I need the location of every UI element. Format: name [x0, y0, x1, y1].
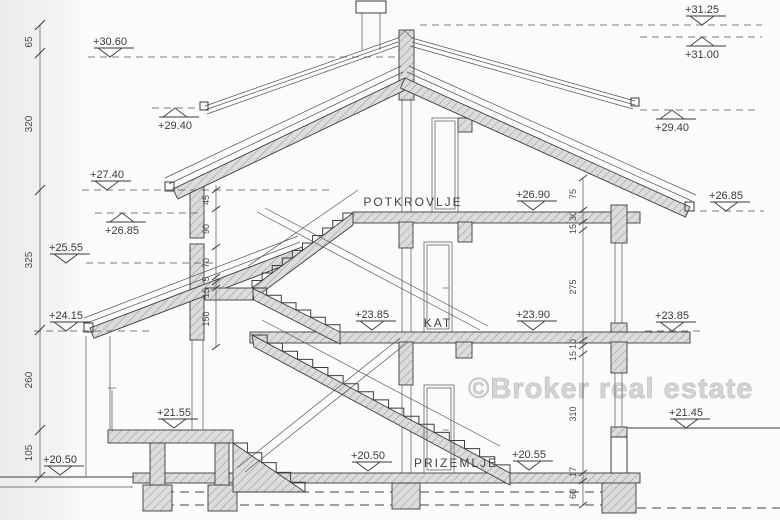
svg-text:17: 17	[568, 467, 578, 477]
svg-text:+23.85: +23.85	[655, 310, 689, 322]
roof	[84, 1, 696, 338]
svg-text:+20.55: +20.55	[512, 449, 546, 461]
svg-text:260: 260	[24, 371, 35, 388]
watermark-text: ©Broker real estate	[468, 373, 753, 405]
svg-text:+26.85: +26.85	[105, 225, 139, 237]
svg-text:+25.55: +25.55	[49, 242, 83, 254]
ground-floor-label: PRIZEMLJE	[414, 456, 498, 470]
svg-text:+24.15: +24.15	[49, 310, 83, 322]
svg-text:+30.60: +30.60	[93, 36, 127, 48]
svg-text:+31.25: +31.25	[685, 4, 719, 16]
attic-floor-slab	[353, 212, 640, 223]
elevation-marker-26-90: +26.90	[516, 189, 557, 210]
svg-text:310: 310	[568, 406, 578, 421]
svg-text:105: 105	[24, 444, 35, 461]
svg-text:10: 10	[568, 339, 578, 349]
elevation-marker-20-50-left: +20.50	[43, 454, 84, 475]
svg-text:15: 15	[568, 351, 578, 361]
first-floor-slab	[250, 332, 690, 343]
elevation-marker-26-85-right: +26.85	[709, 190, 750, 211]
porch-slab	[108, 430, 233, 443]
svg-text:+21.45: +21.45	[669, 407, 703, 419]
svg-text:70: 70	[201, 258, 211, 268]
svg-text:+23.85: +23.85	[355, 309, 389, 321]
first-floor-label: KAT	[424, 316, 452, 330]
elevation-marker-27-40: +27.40	[90, 169, 131, 190]
elevation-marker-20-55: +20.55	[512, 449, 553, 470]
chimney	[356, 1, 386, 13]
svg-text:+29.40: +29.40	[655, 122, 689, 134]
svg-text:65: 65	[24, 36, 35, 48]
svg-text:+20.50: +20.50	[43, 454, 77, 466]
elevation-marker-31-00: +31.00	[685, 37, 726, 61]
svg-text:45: 45	[201, 195, 211, 205]
elevation-marker-29-40-right: +29.40	[655, 110, 696, 134]
svg-text:75: 75	[568, 189, 578, 199]
elevation-marker-23-85-right: +23.85	[655, 310, 696, 331]
svg-text:90: 90	[201, 224, 211, 234]
elevation-marker-31-25: +31.25	[685, 4, 726, 25]
svg-text:+26.85: +26.85	[709, 190, 743, 202]
elevation-marker-21-45: +21.45	[669, 407, 710, 428]
svg-text:30: 30	[568, 211, 578, 221]
svg-text:+23.90: +23.90	[516, 309, 550, 321]
elevation-marker-26-85-left: +26.85	[105, 213, 146, 237]
elevation-marker-25-55: +25.55	[49, 242, 90, 263]
svg-text:+31.00: +31.00	[685, 49, 719, 61]
left-roof-slab	[173, 78, 410, 199]
svg-text:+21.55: +21.55	[157, 407, 191, 419]
svg-text:+29.40: +29.40	[158, 120, 192, 132]
svg-text:325: 325	[24, 251, 35, 268]
elevation-marker-20-50-center: +20.50	[351, 450, 392, 471]
attic-label: POTKROVLJE	[363, 195, 462, 209]
elevation-marker-23-90: +23.90	[516, 309, 557, 330]
house-cross-section-svg: ©Broker real estate	[0, 0, 780, 520]
svg-text:15: 15	[201, 288, 211, 298]
svg-text:+27.40: +27.40	[90, 169, 124, 181]
ground-floor-slab	[133, 473, 640, 483]
svg-text:60: 60	[568, 489, 578, 499]
svg-text:320: 320	[24, 115, 35, 132]
svg-text:5: 5	[201, 276, 211, 281]
svg-text:150: 150	[201, 311, 211, 326]
doors	[424, 118, 458, 473]
elevation-marker-23-85-center: +23.85	[355, 309, 396, 330]
svg-text:+20.50: +20.50	[351, 450, 385, 462]
svg-text:275: 275	[568, 279, 578, 294]
elevation-marker-30-60: +30.60	[93, 36, 134, 57]
svg-text:15: 15	[568, 224, 578, 234]
svg-text:+26.90: +26.90	[516, 189, 550, 201]
left-dimension-ruler: 65 320 325 260 105	[24, 20, 45, 482]
scanned-section-drawing: ©Broker real estate	[0, 0, 780, 520]
elevation-marker-29-40-left: +29.40	[158, 108, 199, 132]
